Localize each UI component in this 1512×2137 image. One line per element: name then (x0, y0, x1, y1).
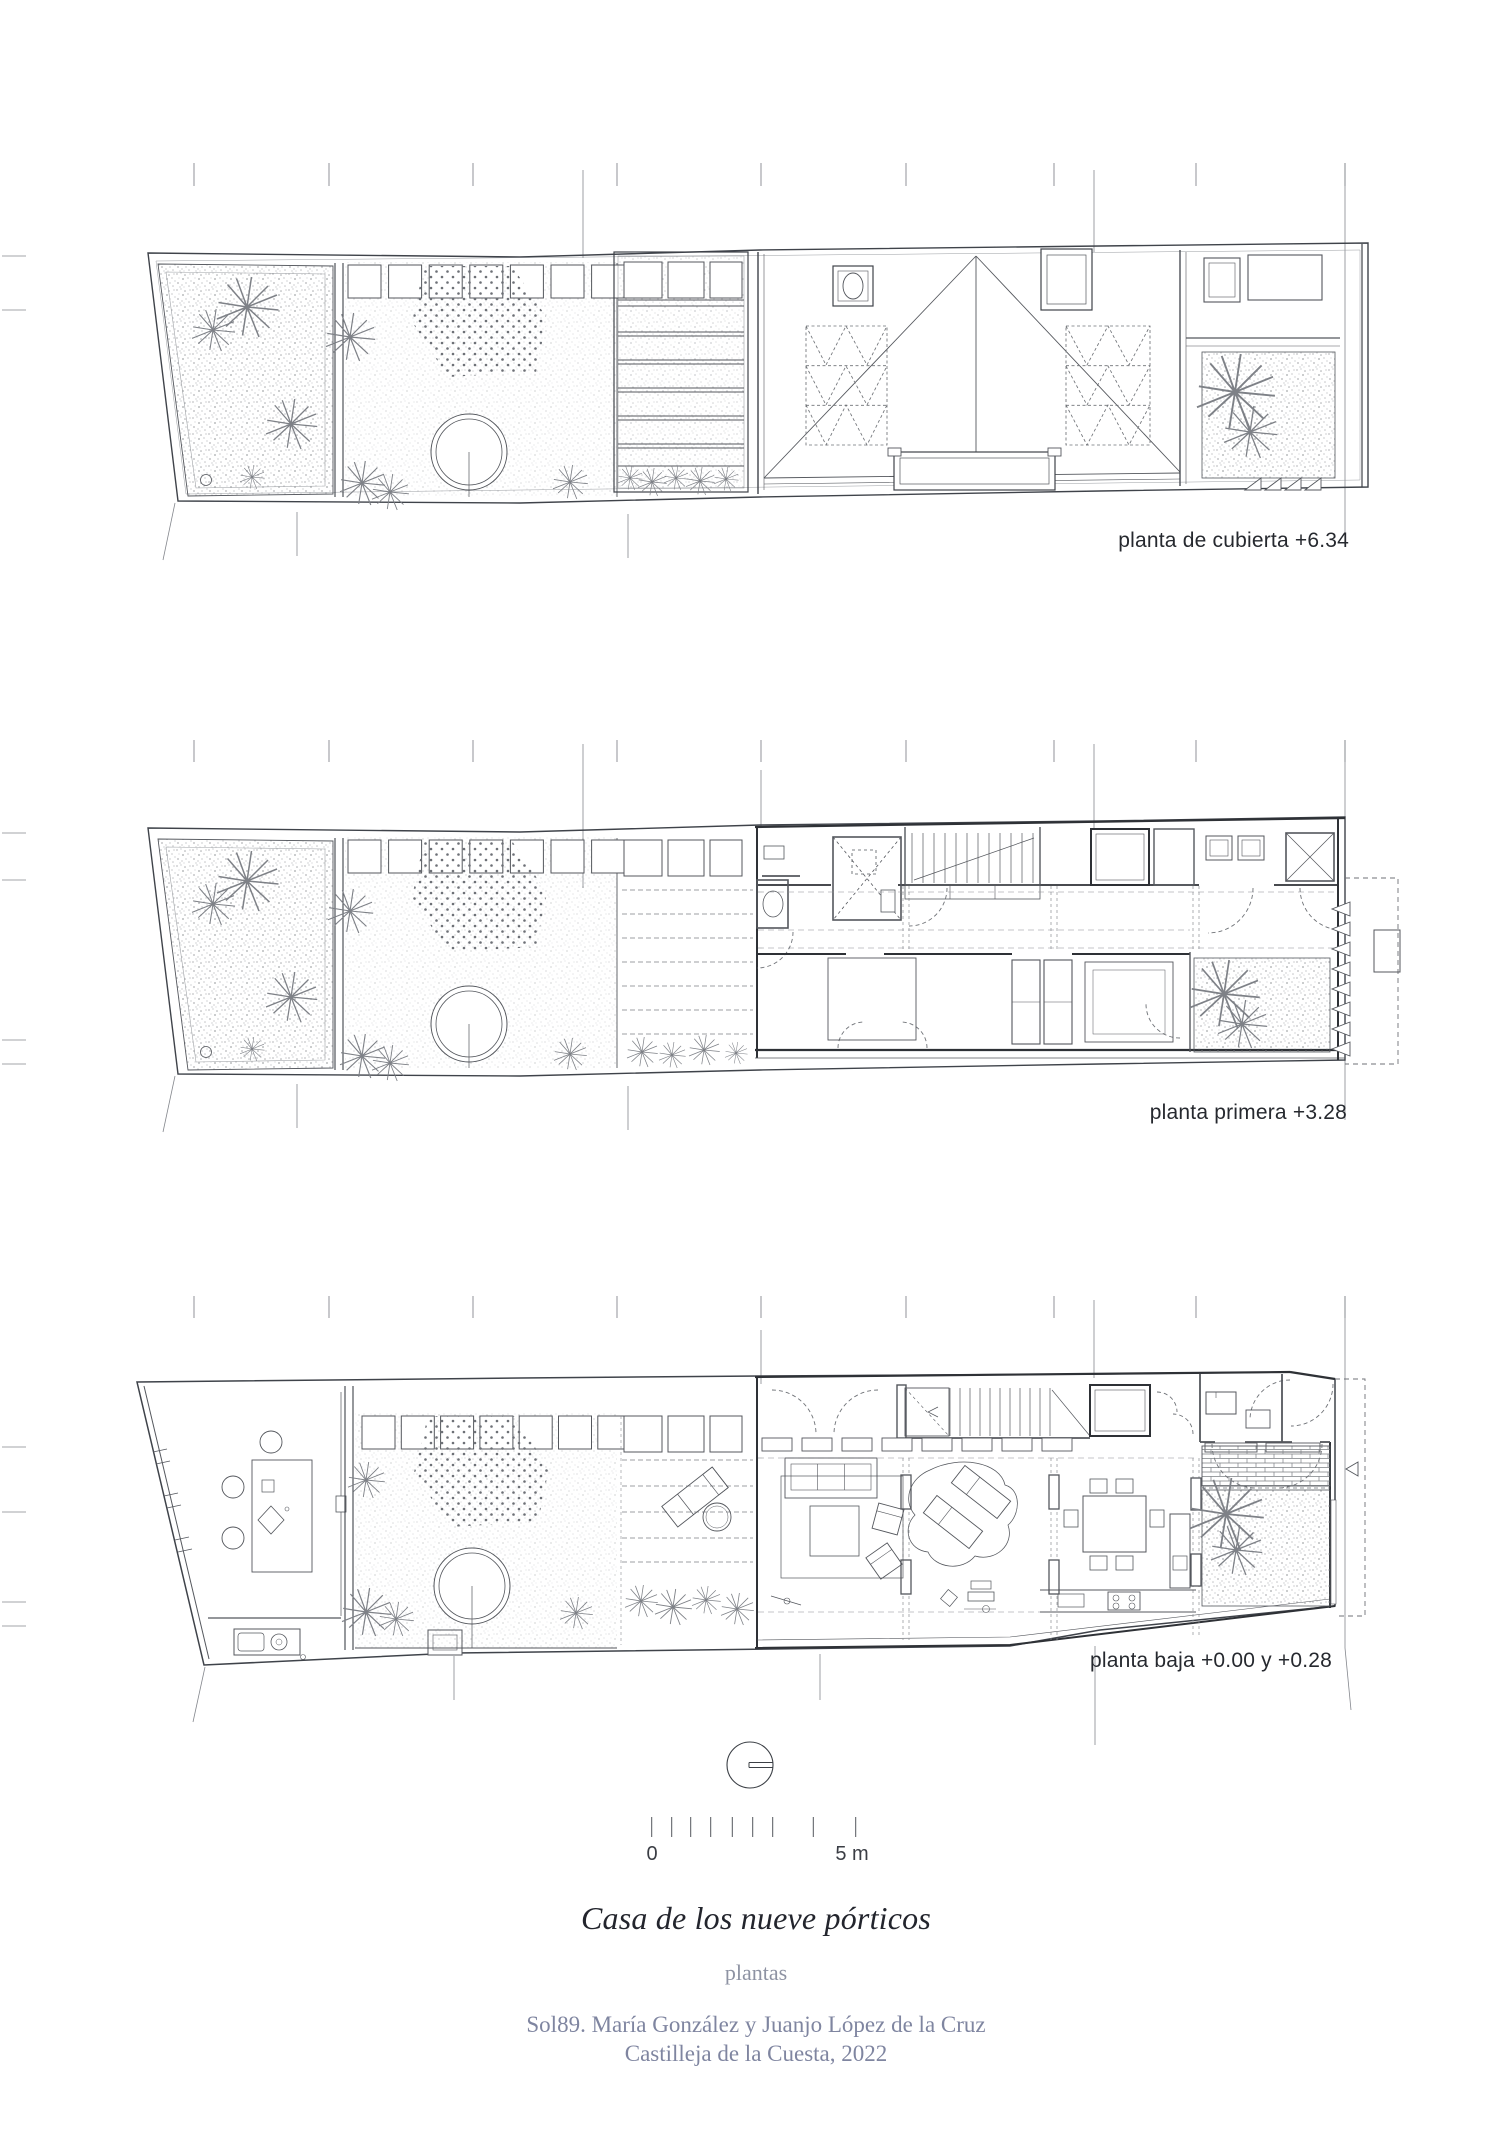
section-lines (2, 1296, 1351, 1745)
drawing-sheet: planta de cubierta +6.34 planta primera … (0, 0, 1512, 2137)
upper-floor-interior (755, 817, 1400, 1064)
courtyard (328, 836, 625, 1081)
courtyard-roof (326, 262, 625, 510)
portico-grid-ticks (194, 740, 1345, 762)
laundry (1206, 836, 1264, 860)
boundary-extension (1335, 1379, 1365, 1616)
upper-terrace-garden (1190, 902, 1350, 1056)
entry-door-arcs (772, 1380, 1333, 1434)
project-title: Casa de los nueve pórticos (0, 1900, 1512, 1937)
utility (1200, 1374, 1330, 1442)
credit-line-1: Sol89. María González y Juanjo López de … (0, 2012, 1512, 2038)
bed-1 (828, 958, 916, 1040)
roof-panel-left (806, 326, 887, 445)
wardrobe-block (1012, 960, 1072, 1044)
party-garden (158, 263, 343, 497)
main-roof (758, 249, 1186, 494)
scale-end-label: 5 m (822, 1843, 882, 1866)
chair (222, 1527, 244, 1549)
chair (222, 1476, 244, 1498)
credit-line-2: Castilleja de la Cuesta, 2022 (0, 2041, 1512, 2067)
central-hall (908, 1462, 1017, 1612)
chair (260, 1431, 282, 1453)
chimney (833, 266, 873, 306)
plan-label-cubierta: planta de cubierta +6.34 (1118, 529, 1349, 553)
annex-box (1374, 930, 1400, 972)
plan-baja (2, 1296, 1365, 1745)
bed-2 (1085, 962, 1173, 1042)
porch (621, 1416, 754, 1645)
plan-primera (2, 740, 1400, 1132)
gutter-trough (888, 448, 1061, 490)
entry-patio (1190, 1444, 1330, 1606)
scale-bar (652, 1817, 856, 1837)
sawtooth-edge (1332, 902, 1350, 1056)
studio-room (222, 1392, 346, 1616)
boundary-extension (1345, 878, 1398, 1064)
kitchen (1040, 1514, 1196, 1612)
dining-room (1064, 1479, 1164, 1570)
north-arrow-icon (727, 1742, 773, 1788)
terrace-deck (622, 840, 753, 1068)
party-garden (158, 838, 343, 1070)
roof-hatch-box (1041, 249, 1092, 310)
shower-bath (1286, 833, 1334, 881)
portico-columns-dashed (903, 886, 1199, 950)
roof-patio (1186, 244, 1362, 490)
work-table (252, 1460, 312, 1572)
ground-floor-interior (755, 1372, 1365, 1648)
plan-label-primera: planta primera +3.28 (1150, 1101, 1347, 1125)
side-table (703, 1503, 731, 1531)
piers (901, 1475, 1201, 1594)
plan-cubierta (2, 163, 1368, 560)
lounge-chair (662, 1467, 728, 1527)
staircase (905, 827, 1040, 899)
plans-drawing (0, 0, 1512, 2137)
window-sills (153, 1449, 192, 1552)
portico-grid-ticks (194, 1296, 1345, 1318)
entry-arrow (1346, 1462, 1358, 1476)
green-roof-pergola (614, 252, 748, 496)
drawing-subtitle: plantas (0, 1960, 1512, 1986)
living-room (771, 1458, 904, 1605)
plan-label-baja: planta baja +0.00 y +0.28 (1090, 1649, 1332, 1673)
void-shafts (1091, 829, 1194, 885)
bathroom (757, 846, 800, 928)
scale-start-label: 0 (637, 1843, 667, 1866)
void-shaft (1090, 1385, 1150, 1436)
portico-grid-ticks (194, 163, 1345, 186)
dressing-closet (833, 837, 901, 920)
staircase (905, 1388, 1090, 1438)
courtyard (342, 1386, 631, 1650)
